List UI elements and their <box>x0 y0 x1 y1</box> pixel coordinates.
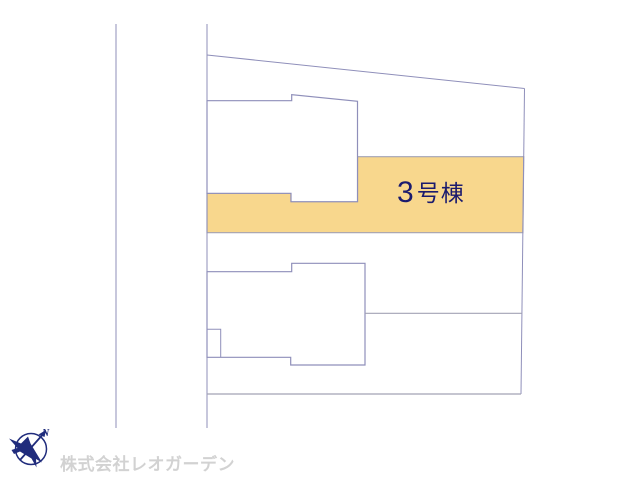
building-3-label-number: 3 <box>397 178 414 208</box>
upper-building-footprint <box>207 95 358 202</box>
east-boundary-line <box>521 89 525 395</box>
site-plan-map: 3 号棟 N 株式会社レオガーデン <box>0 0 640 480</box>
company-logo: N <box>7 424 57 474</box>
building-3-label-suffix: 号棟 <box>417 182 465 205</box>
company-watermark: 株式会社レオガーデン <box>60 450 235 475</box>
north-boundary-line <box>207 55 525 89</box>
building-3-label: 3 号棟 <box>397 177 465 209</box>
north-label: N <box>41 428 50 439</box>
lower-building-footprint <box>207 263 365 365</box>
site-plan-svg <box>0 0 640 480</box>
